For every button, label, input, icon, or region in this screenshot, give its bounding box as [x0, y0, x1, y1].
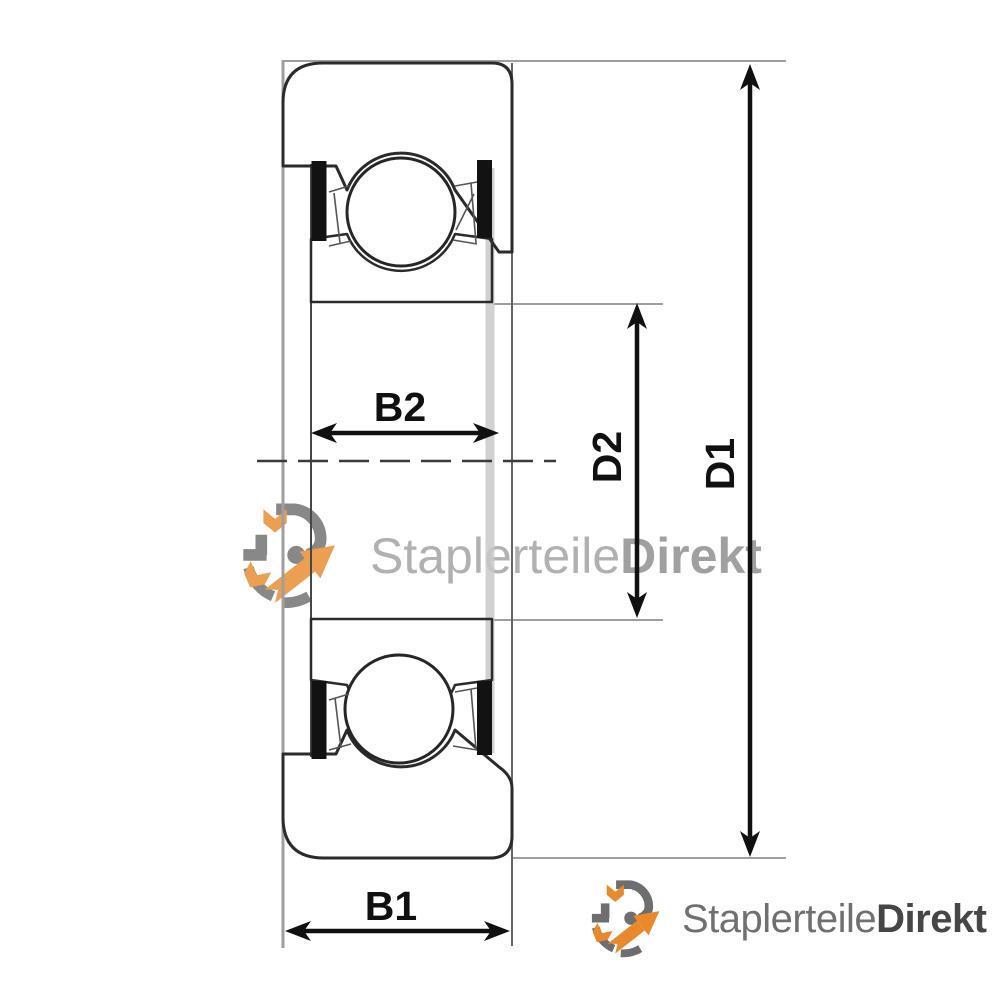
dimension-b2: B2 [311, 384, 499, 443]
brand-name-regular: Staplerteile [682, 897, 876, 941]
seal-top-right [477, 160, 492, 238]
ball-bottom [345, 655, 453, 763]
bearing-top-section [283, 63, 512, 302]
dimension-d1: D1 [697, 64, 760, 857]
seal-bottom-right [477, 681, 492, 755]
brand-logo-text: StaplerteileDirekt [682, 897, 987, 942]
bearing-technical-drawing-page: StaplerteileDirekt [0, 0, 1000, 1000]
bearing-bottom-section [283, 619, 512, 858]
label-d1: D1 [697, 438, 743, 490]
brand-name-bold: Direkt [876, 897, 986, 941]
brand-logo: StaplerteileDirekt [588, 879, 987, 959]
label-b2: B2 [374, 384, 426, 430]
seal-top-left [312, 161, 327, 241]
ball-top [347, 158, 455, 266]
dimension-b1: B1 [285, 883, 510, 941]
seal-bottom-left [312, 681, 327, 759]
label-b1: B1 [365, 883, 417, 929]
dimension-d2: D2 [584, 303, 647, 618]
brand-logo-icon-footer [588, 880, 666, 958]
bearing-cross-section-drawing: B2 B1 D2 D1 [0, 0, 1000, 1000]
label-d2: D2 [584, 431, 630, 483]
